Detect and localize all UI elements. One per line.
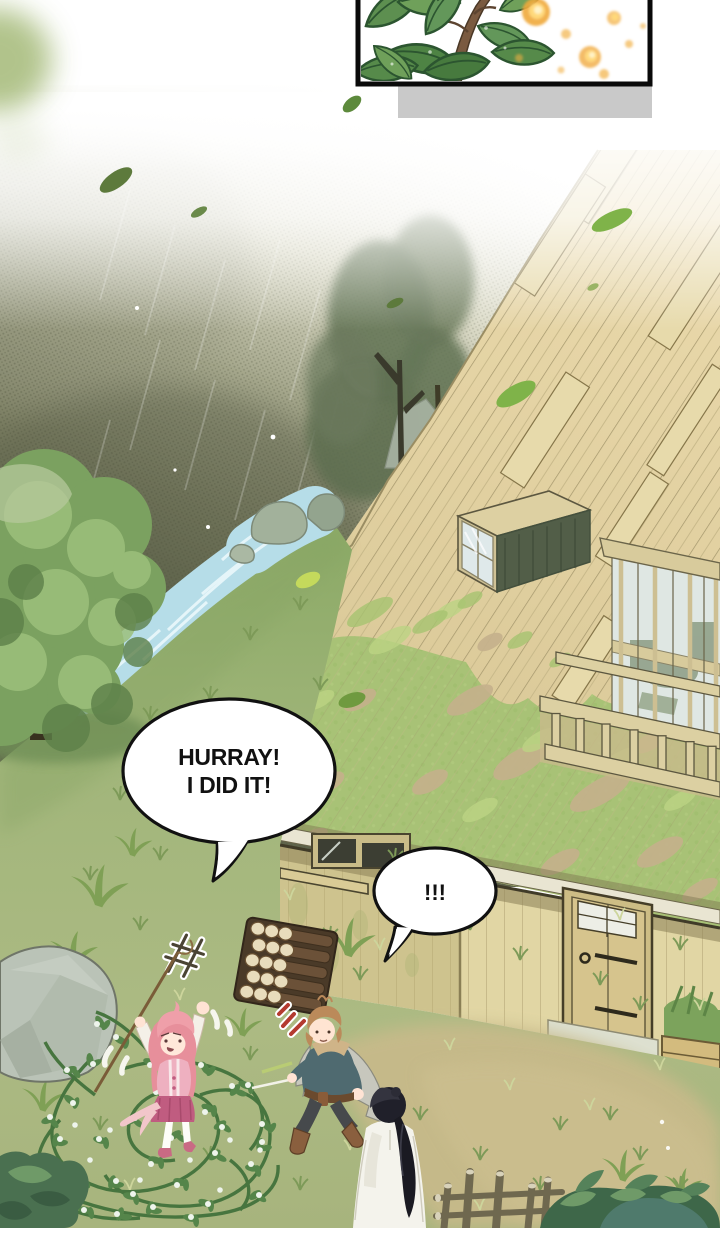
svg-text:I DID IT!: I DID IT! [187, 772, 271, 798]
svg-text:HURRAY!: HURRAY! [178, 744, 280, 770]
svg-text:!!!: !!! [424, 880, 446, 905]
